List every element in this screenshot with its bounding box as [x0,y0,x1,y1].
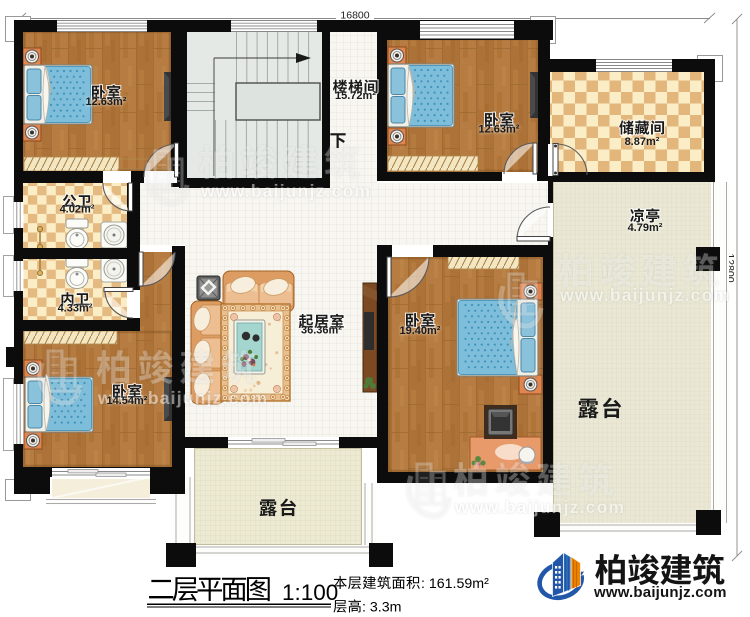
svg-text:15.72m²: 15.72m² [335,90,376,102]
svg-text:12.63m²: 12.63m² [479,124,520,136]
svg-text:: 161.59m²: : 161.59m² [421,576,489,592]
svg-text:14.54m²: 14.54m² [107,395,148,407]
svg-text:4.02m²: 4.02m² [60,204,95,216]
svg-text:www.baijunjz.com: www.baijunjz.com [454,497,625,517]
svg-text:www.baijunjz.com: www.baijunjz.com [559,285,730,305]
svg-text:4.79m²: 4.79m² [628,222,663,234]
svg-text:: 3.3m: : 3.3m [362,600,401,616]
svg-text:4.33m²: 4.33m² [58,303,93,315]
svg-text:36.36m²: 36.36m² [301,325,342,337]
svg-text:12.63m²: 12.63m² [86,96,127,108]
svg-text:16800: 16800 [340,10,369,22]
svg-text:8.87m²: 8.87m² [625,136,660,148]
svg-text:19.40m²: 19.40m² [400,325,441,337]
svg-text:1:100: 1:100 [282,580,338,605]
svg-text:www.baijunjz.com: www.baijunjz.com [593,584,727,601]
svg-text:www.baijunjz.com: www.baijunjz.com [200,181,371,201]
